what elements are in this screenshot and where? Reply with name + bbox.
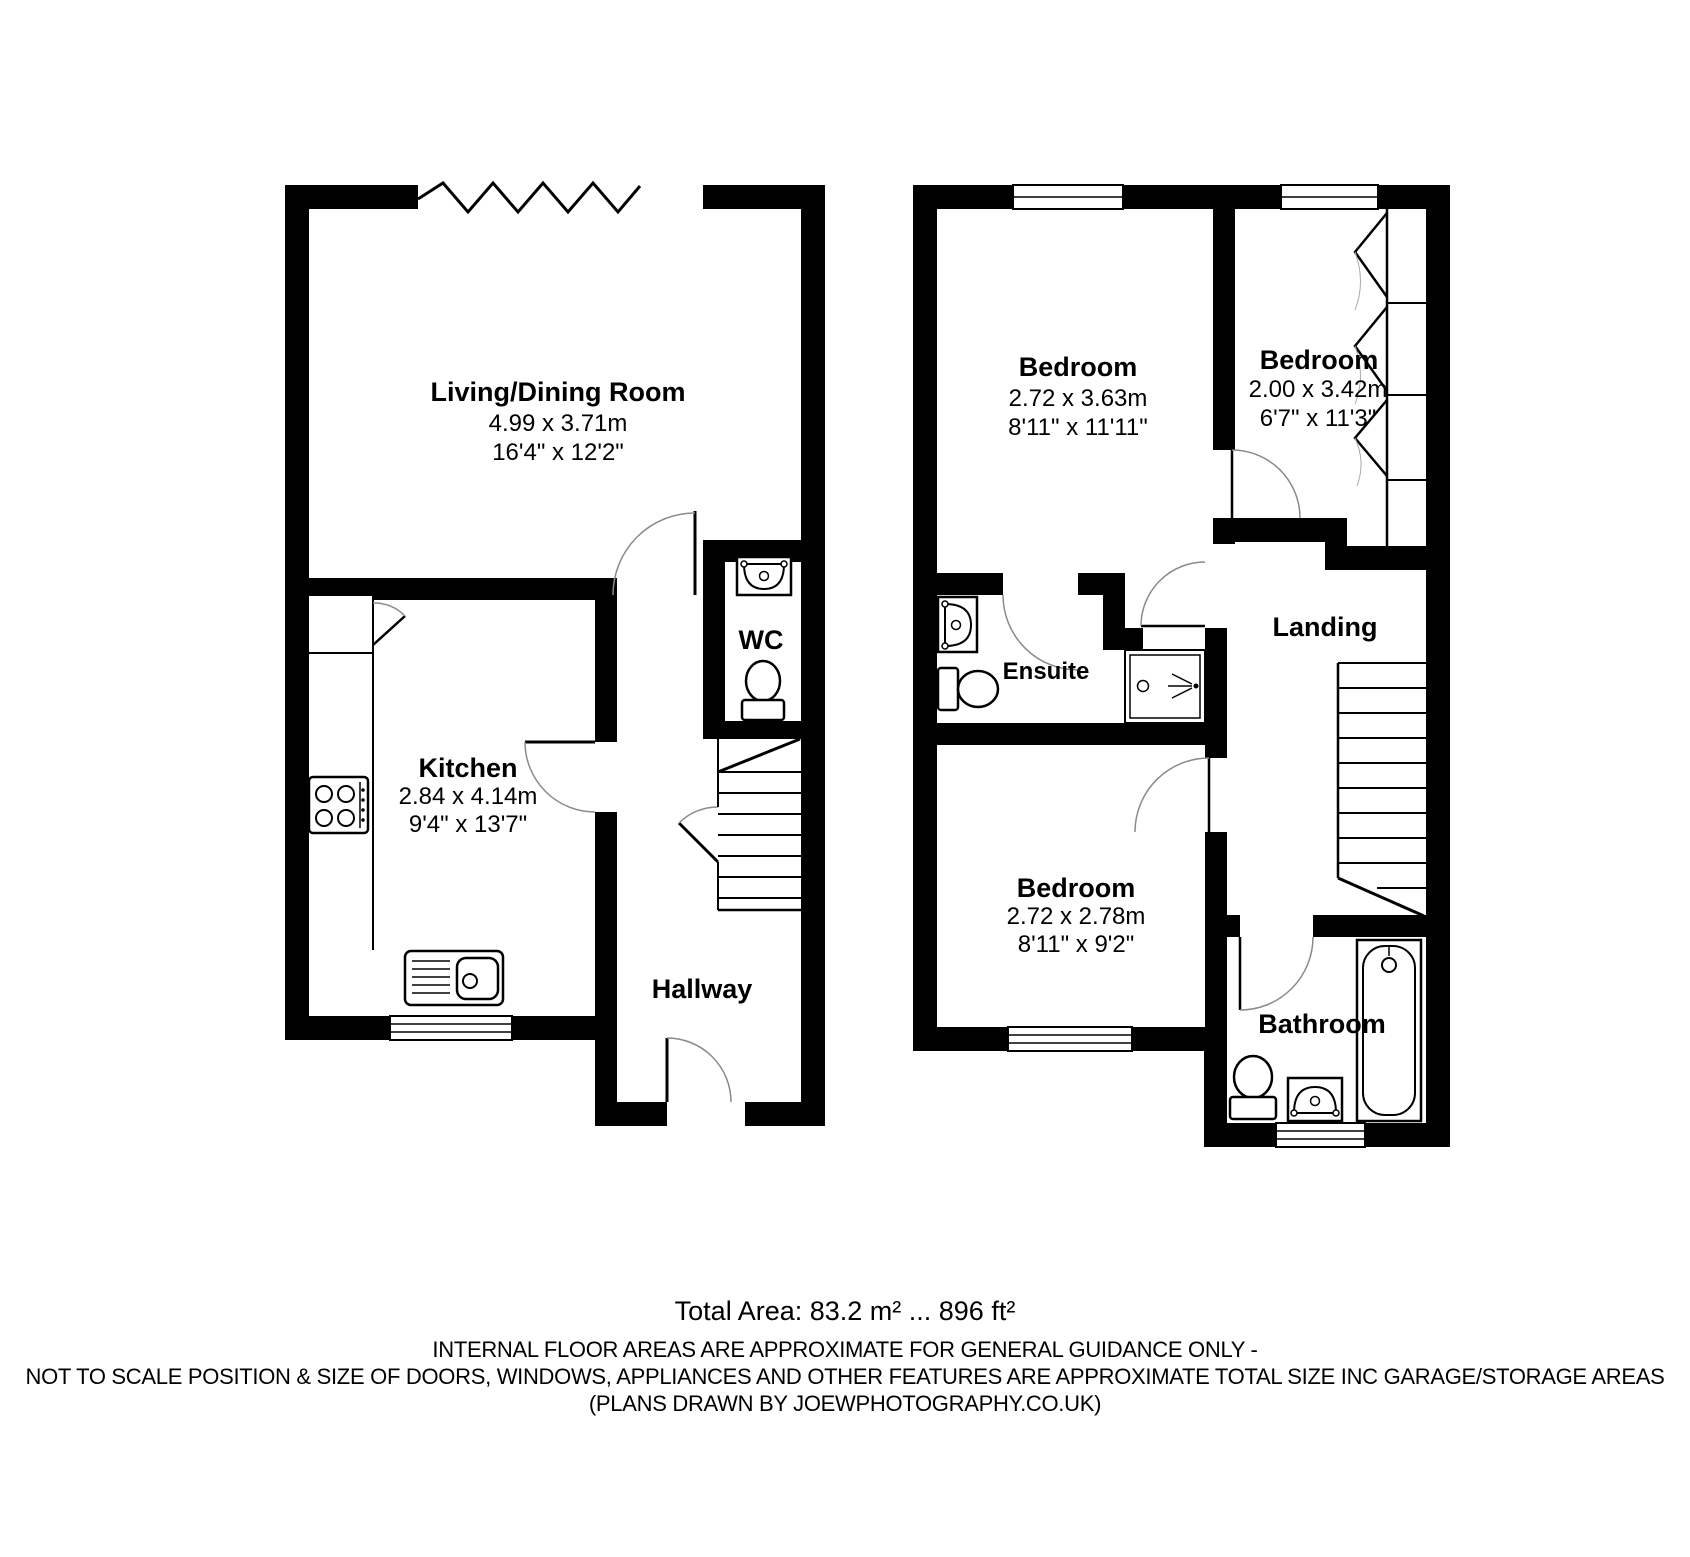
room-label-kitchen: Kitchen [418,753,517,783]
hob-control-dot [361,818,365,822]
hob-burner [338,786,354,802]
room-label-landing: Landing [1273,612,1378,642]
toilet-cistern [1230,1097,1276,1119]
door-arc [613,513,695,595]
hob-icon [309,777,368,833]
first-stairs [1338,663,1426,916]
opening-zigzag [418,183,640,212]
shower-drain [1138,681,1149,692]
stair-break-line [718,739,800,772]
wall-segment [1227,915,1240,937]
living-dim-imperial: 16'4" x 12'2" [492,439,624,466]
bath-drain [1382,958,1396,972]
window [1008,1027,1132,1051]
basin-tap [1291,1110,1297,1116]
wall-segment [1213,209,1235,450]
window [1276,1123,1365,1147]
wall-segment [703,540,725,739]
wall-segment [595,578,617,742]
hob-burner [316,786,332,802]
wall-segment [1325,546,1426,570]
basin-tap [942,601,948,607]
bedroom1-dim-imperial: 8'11" x 11'11" [1008,414,1148,441]
bedroom2-dim-metric: 2.00 x 3.42m [1249,376,1388,403]
floorplan-canvas: Living/Dining Room 4.99 x 3.71m 16'4" x … [0,0,1690,1557]
plan-credit-text: (PLANS DRAWN BY JOEWPHOTOGRAPHY.CO.UK) [589,1391,1101,1416]
basin-drain [952,621,961,630]
room-label-bedroom3: Bedroom [1017,873,1136,903]
stair-break-line [1338,878,1424,916]
kitchen-dim-metric: 2.84 x 4.14m [399,783,538,810]
bedroom3-dim-metric: 2.72 x 2.78m [1007,903,1146,930]
hob-burner [316,810,332,826]
wall-segment [703,721,801,739]
hob-control-dot [361,798,365,802]
wall-segment [801,185,825,1126]
wall-segment [595,812,617,1126]
kitchen-dim-imperial: 9'4" x 13'7" [409,811,527,838]
bedroom2-dim-imperial: 6'7" x 11'3" [1260,405,1377,432]
wall-segment [595,1102,667,1126]
living-dim-metric: 4.99 x 3.71m [489,410,628,437]
wall-segment [745,1102,825,1126]
wall-segment [285,185,309,1040]
basin-drain [1311,1097,1320,1106]
room-label-bedroom2: Bedroom [1260,345,1379,375]
toilet-icon [958,671,998,707]
hob-control-dot [361,788,365,792]
bathroom-door-arc [1240,937,1313,1010]
first-floor-plan: Bedroom 2.72 x 3.63m 8'11" x 11'11" Bedr… [913,185,1450,1147]
wall-segment [937,723,1227,745]
basin-tap [781,561,787,567]
front-door-arc [667,1038,731,1102]
floorplan-page: Living/Dining Room 4.99 x 3.71m 16'4" x … [0,0,1690,1557]
ground-stairs [718,739,801,910]
ground-windows [390,1016,512,1040]
toilet-icon [1234,1056,1272,1098]
basin-drain [760,572,769,581]
ground-floor-plan: Living/Dining Room 4.99 x 3.71m 16'4" x … [285,183,825,1126]
wall-segment [1426,185,1450,1147]
disclaimer-line-2: NOT TO SCALE POSITION & SIZE OF DOORS, W… [26,1364,1665,1389]
cupboard-door-arc [373,603,405,616]
wall-segment [1103,573,1125,650]
wardrobe-door-open [1355,213,1387,297]
wall-segment [1313,915,1426,937]
bedroom3-door-arc [1135,758,1209,832]
bedroom1-dim-metric: 2.72 x 3.63m [1009,385,1148,412]
shower-head [1194,684,1199,689]
wall-segment [937,573,1003,595]
door-leaf [679,823,718,862]
room-label-bedroom1: Bedroom [1019,352,1138,382]
wall-segment [913,185,937,1051]
wall-segment [1125,628,1143,650]
toilet-cistern [742,700,784,720]
room-label-living: Living/Dining Room [431,377,686,407]
room-label-bathroom: Bathroom [1258,1009,1386,1039]
basin-tap [942,643,948,649]
door-arc [679,807,718,823]
wall-segment [1204,1027,1227,1147]
basin-tap [741,561,747,567]
window [390,1016,512,1040]
bedroom2-door-arc [1232,450,1300,518]
footer-text: Total Area: 83.2 m² ... 896 ft² INTERNAL… [26,1296,1665,1416]
hob-burner [338,810,354,826]
bedroom1-door-arc [1141,562,1205,626]
toilet-icon [746,661,780,701]
wall-segment [1213,518,1325,542]
total-area-text: Total Area: 83.2 m² ... 896 ft² [675,1296,1016,1326]
room-label-wc: WC [739,625,784,655]
toilet-cistern [938,668,958,710]
hob-control-dot [361,808,365,812]
bedroom3-dim-imperial: 8'11" x 9'2" [1018,931,1135,958]
room-label-hallway: Hallway [652,974,753,1004]
wall-segment [1205,832,1227,1027]
disclaimer-line-1: INTERNAL FLOOR AREAS ARE APPROXIMATE FOR… [432,1337,1257,1362]
corner-cupboard-icon [308,595,373,653]
basin-tap [1333,1110,1339,1116]
room-label-ensuite: Ensuite [1003,658,1090,685]
wall-segment [1205,628,1227,758]
cupboard-door-leaf [373,616,405,645]
sink-drain [463,974,477,988]
